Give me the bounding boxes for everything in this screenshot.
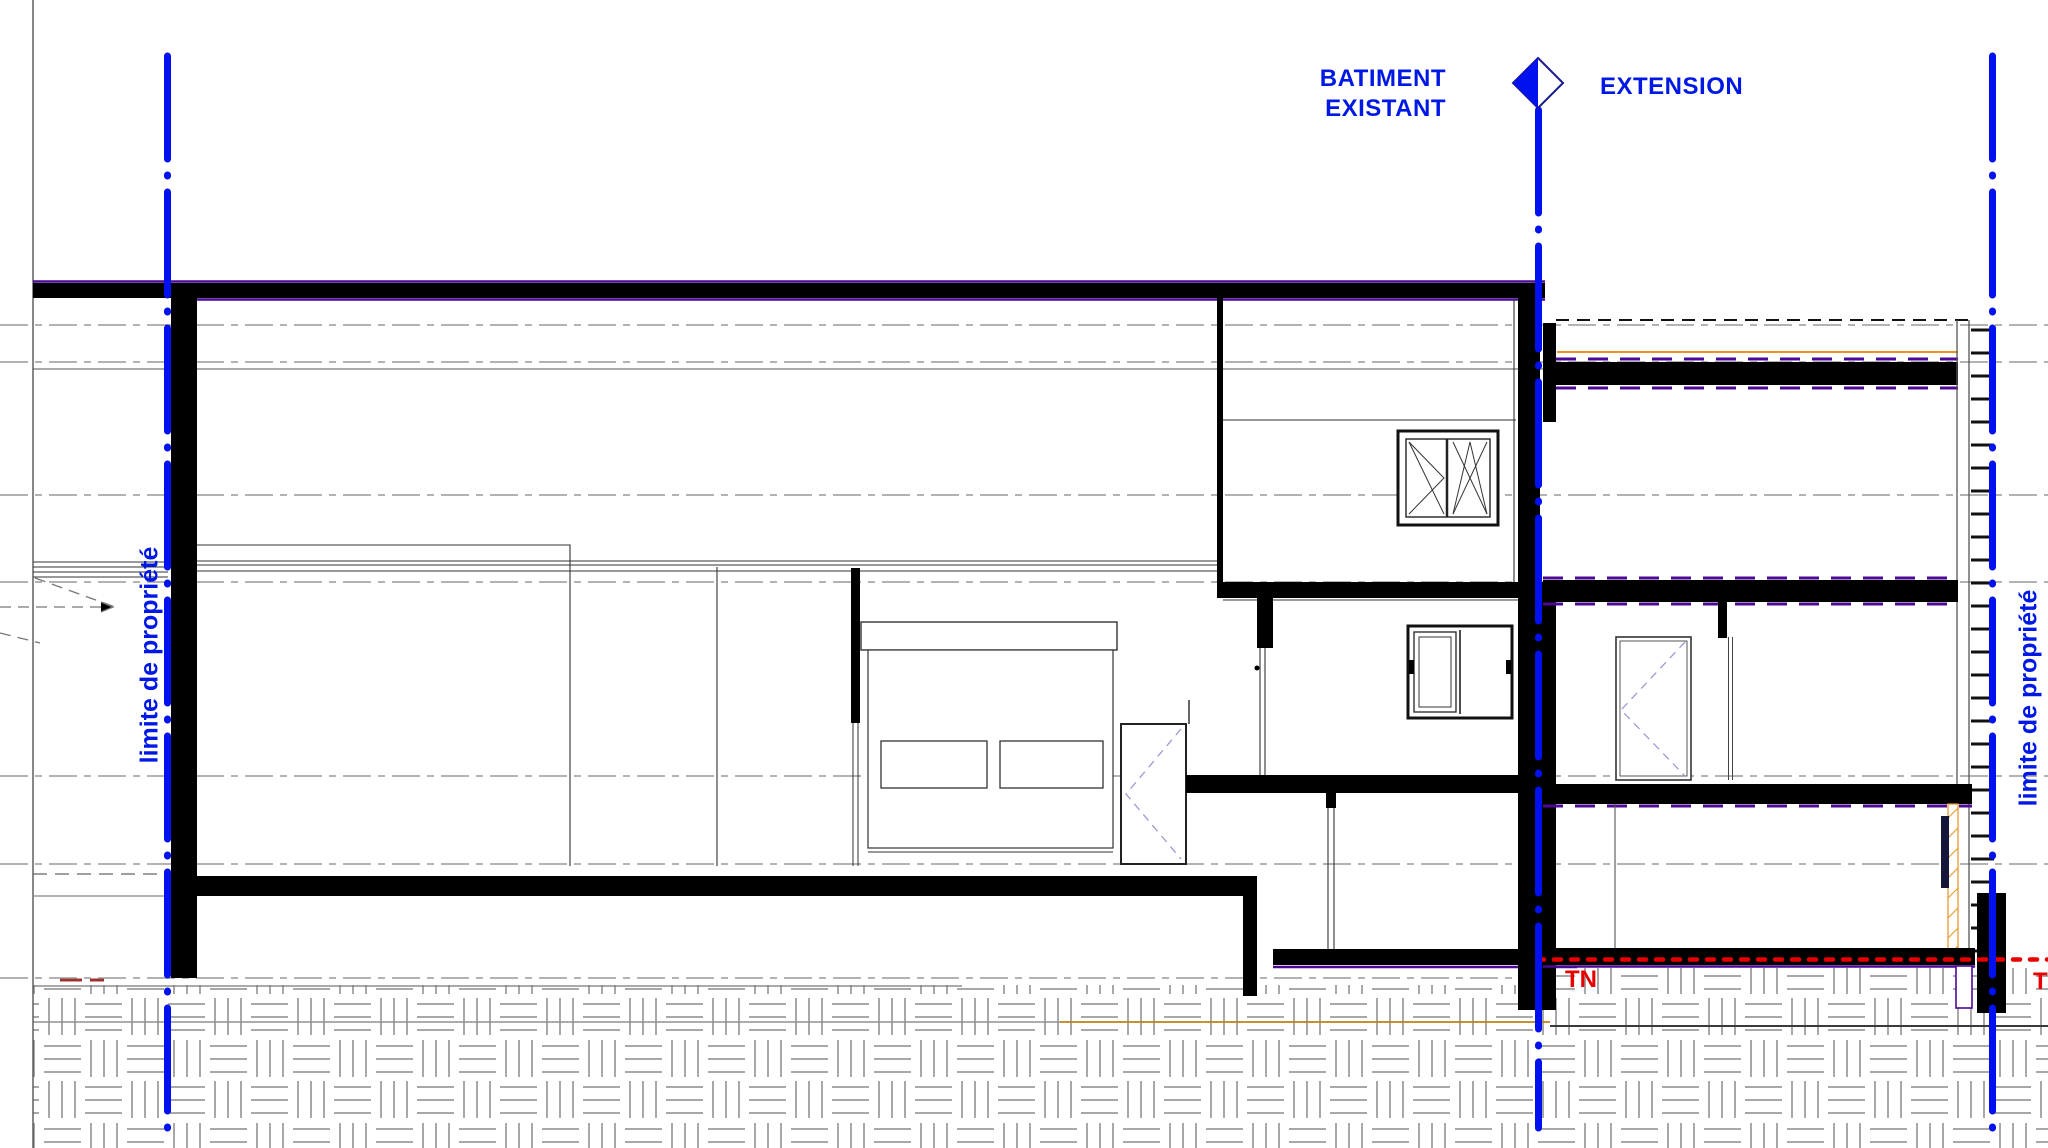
label-tn-right: TN	[2033, 968, 2048, 996]
window-handle-right	[1506, 660, 1511, 674]
ext-slab-bottom	[1543, 948, 1975, 965]
footing-wall	[1243, 896, 1257, 996]
ext-door-jamb-lines	[1729, 637, 1733, 780]
ground-hatch	[33, 968, 2048, 1148]
interior-door	[1121, 700, 1189, 864]
ceiling-double-line	[197, 561, 1217, 565]
ext-window-bar	[1941, 816, 1949, 888]
soffit-band	[861, 622, 1117, 650]
roof-slab	[33, 283, 1545, 298]
label-property-limit-left: limite de propriété	[136, 547, 165, 764]
tall-unit-side	[851, 568, 860, 723]
window-lower	[1408, 626, 1512, 718]
drawer-left	[881, 741, 987, 788]
section-drawing	[0, 0, 2048, 1148]
ext-right-wall	[1957, 320, 1969, 964]
ext-slab-2	[1543, 784, 1972, 804]
mid-partition	[1328, 793, 1334, 949]
floor-slab	[196, 876, 1257, 896]
mid-wall-stub	[1257, 598, 1273, 648]
tall-unit-lines	[853, 723, 858, 866]
door-frame	[1121, 724, 1186, 864]
ceiling-line-low	[197, 545, 570, 866]
window-upper	[1398, 431, 1498, 525]
party-wall-stub-top	[1543, 323, 1556, 422]
mid-left-wall	[1217, 297, 1223, 583]
ext-slab-1	[1543, 580, 1958, 602]
label-property-limit-right: limite de propriété	[2015, 590, 2044, 807]
ext-purple-box	[1956, 966, 1972, 1008]
ext-roof-slab	[1556, 362, 1958, 385]
drawing-canvas: BATIMENTEXISTANT EXTENSION limite de pro…	[0, 0, 2048, 1148]
mid-door-jamb	[1260, 648, 1265, 775]
ext-door-frame	[1616, 637, 1691, 780]
left-wall	[171, 297, 197, 978]
kitchen-joinery	[851, 568, 1117, 866]
left-terrain-annotation	[0, 578, 115, 643]
label-batiment-existant: BATIMENTEXISTANT	[1316, 64, 1446, 124]
mid-slab-2	[1186, 775, 1545, 793]
door-handle-dot	[1255, 666, 1260, 671]
existing-building	[33, 282, 1545, 997]
label-extension: EXTENSION	[1600, 72, 1743, 102]
ext-door-head-stub	[1718, 602, 1727, 638]
ext-orange-strip	[1948, 804, 1958, 958]
extension-door	[1616, 602, 1733, 780]
label-batiment-line1: BATIMENT	[1320, 65, 1446, 92]
label-batiment-line2: EXISTANT	[1325, 95, 1446, 122]
section-axis-marker-icon	[1513, 58, 1563, 108]
drawer-right	[1000, 741, 1103, 788]
label-tn: TN	[1565, 966, 1597, 994]
mid-partition-head	[1326, 793, 1336, 808]
extension	[1543, 320, 2006, 1013]
mid-slab-1	[1217, 582, 1545, 598]
window-handle-left	[1409, 660, 1414, 674]
